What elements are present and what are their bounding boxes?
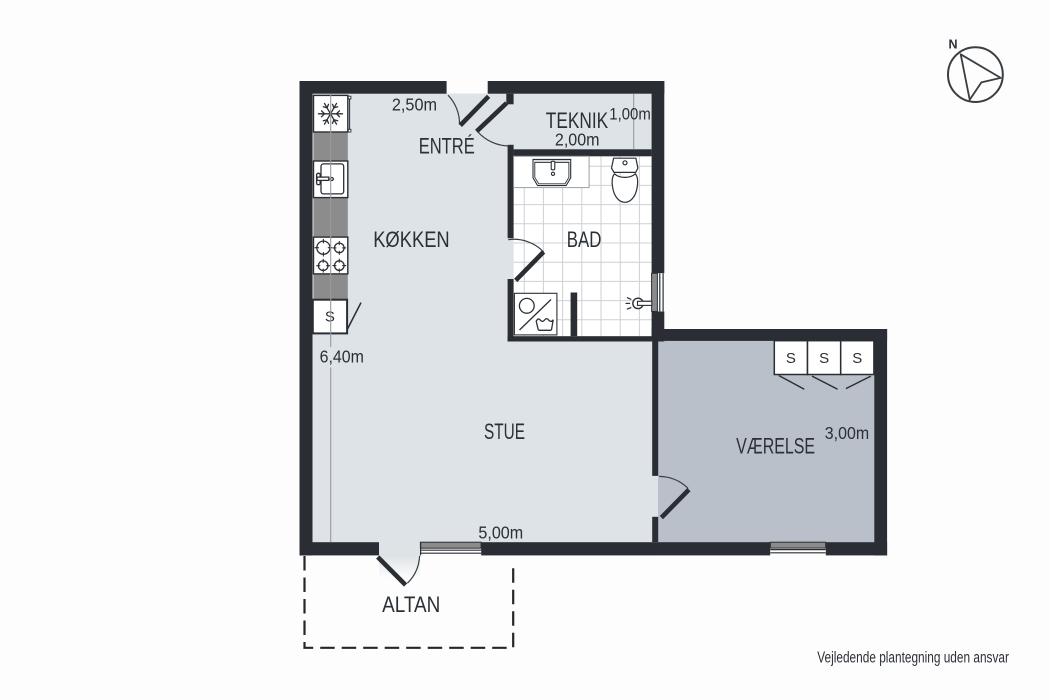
- svg-text:2,00m: 2,00m: [555, 129, 600, 149]
- svg-text:S: S: [819, 350, 829, 367]
- svg-text:S: S: [852, 350, 862, 367]
- svg-text:S: S: [325, 309, 335, 326]
- svg-text:6,40m: 6,40m: [320, 346, 364, 366]
- svg-text:2,50m: 2,50m: [392, 95, 437, 115]
- svg-text:S: S: [786, 350, 796, 367]
- svg-text:N: N: [949, 38, 958, 52]
- svg-text:ALTAN: ALTAN: [382, 592, 440, 617]
- svg-text:VÆRELSE: VÆRELSE: [736, 433, 815, 458]
- svg-text:5,00m: 5,00m: [478, 523, 523, 543]
- svg-text:1,00m: 1,00m: [609, 106, 651, 124]
- svg-text:STUE: STUE: [484, 419, 525, 444]
- svg-text:ENTRÉ: ENTRÉ: [419, 134, 475, 159]
- svg-text:KØKKEN: KØKKEN: [373, 227, 450, 252]
- svg-text:Vejledende plantegning uden an: Vejledende plantegning uden ansvar: [817, 650, 1009, 667]
- svg-text:3,00m: 3,00m: [825, 423, 869, 443]
- svg-text:BAD: BAD: [567, 227, 602, 252]
